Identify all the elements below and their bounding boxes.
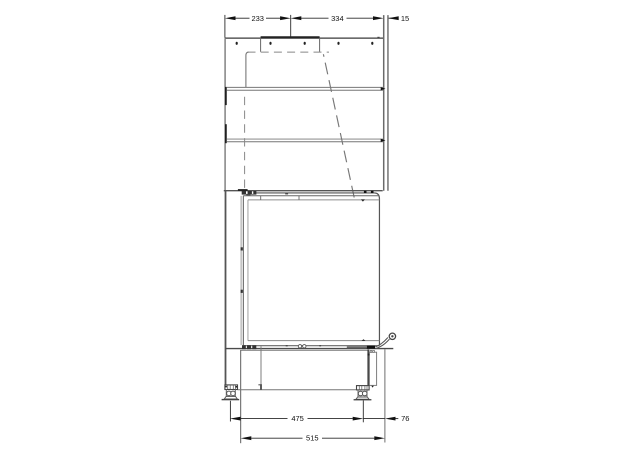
svg-text:475: 475 xyxy=(291,414,304,423)
svg-text:15: 15 xyxy=(401,14,409,23)
svg-text:76: 76 xyxy=(401,414,409,423)
svg-text:515: 515 xyxy=(306,434,319,443)
svg-text:233: 233 xyxy=(251,14,264,23)
svg-text:334: 334 xyxy=(331,14,344,23)
